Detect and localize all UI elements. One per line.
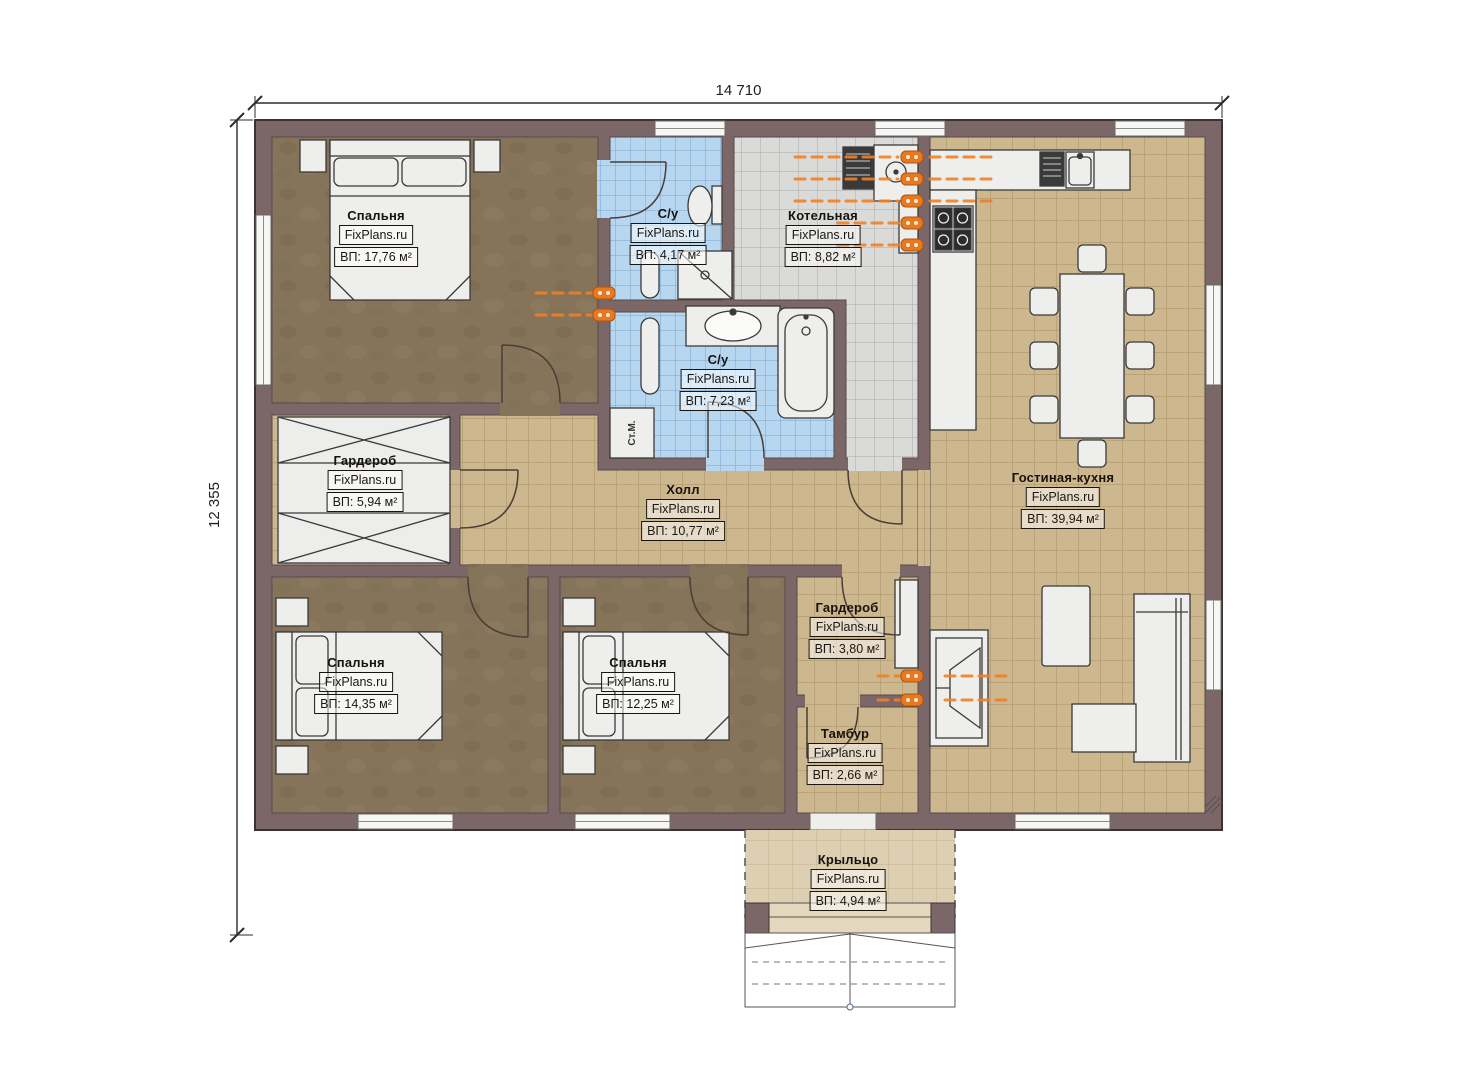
room-name: Холл: [666, 482, 699, 497]
room-area: ВП: 14,35 м²: [314, 694, 398, 714]
dimension-width-label: 14 710: [255, 82, 1222, 99]
room-label-vestibule: Тамбур FixPlans.ru ВП: 2,66 м²: [807, 726, 884, 785]
room-label-wardrobe-1: Гардероб FixPlans.ru ВП: 5,94 м²: [327, 453, 404, 512]
room-area: ВП: 7,23 м²: [680, 391, 757, 411]
room-name: Гардероб: [333, 453, 396, 468]
room-label-boiler-room: Котельная FixPlans.ru ВП: 8,82 м²: [785, 208, 862, 267]
cabinet: [895, 580, 918, 668]
room-label-porch: Крыльцо FixPlans.ru ВП: 4,94 м²: [810, 852, 887, 911]
room-brand: FixPlans.ru: [786, 225, 861, 245]
bathtub: [778, 308, 834, 418]
room-brand: FixPlans.ru: [646, 499, 721, 519]
room-area: ВП: 2,66 м²: [807, 765, 884, 785]
coffee-table: [1042, 586, 1090, 666]
room-brand: FixPlans.ru: [681, 369, 756, 389]
entrance-door: [810, 813, 876, 830]
room-label-hall: Холл FixPlans.ru ВП: 10,77 м²: [641, 482, 725, 541]
room-area: ВП: 12,25 м²: [596, 694, 680, 714]
room-label-bedroom-3: Спальня FixPlans.ru ВП: 12,25 м²: [596, 655, 680, 714]
towel-radiator: [641, 318, 659, 394]
room-name: Спальня: [327, 655, 385, 670]
washing-machine-label: Ст.М.: [619, 405, 645, 461]
room-label-bedroom-2: Спальня FixPlans.ru ВП: 14,35 м²: [314, 655, 398, 714]
room-area: ВП: 17,76 м²: [334, 247, 418, 267]
room-area: ВП: 4,17 м²: [630, 245, 707, 265]
room-name: Гардероб: [815, 600, 878, 615]
room-area: ВП: 39,94 м²: [1021, 509, 1105, 529]
room-name: Спальня: [347, 208, 405, 223]
room-name: Тамбур: [821, 726, 869, 741]
room-brand: FixPlans.ru: [319, 672, 394, 692]
room-label-wardrobe-2: Гардероб FixPlans.ru ВП: 3,80 м²: [809, 600, 886, 659]
room-name: Гостиная-кухня: [1012, 470, 1114, 485]
room-brand: FixPlans.ru: [601, 672, 676, 692]
room-area: ВП: 10,77 м²: [641, 521, 725, 541]
room-area: ВП: 5,94 м²: [327, 492, 404, 512]
room-brand: FixPlans.ru: [339, 225, 414, 245]
fireplace: [930, 630, 988, 746]
room-area: ВП: 4,94 м²: [810, 891, 887, 911]
room-brand: FixPlans.ru: [808, 743, 883, 763]
floorplan-page: 14 710 12 355 Спальня FixPlans.ru ВП: 17…: [0, 0, 1473, 1080]
room-brand: FixPlans.ru: [810, 617, 885, 637]
room-label-bathroom-2: С/у FixPlans.ru ВП: 7,23 м²: [680, 352, 757, 411]
room-brand: FixPlans.ru: [631, 223, 706, 243]
room-brand: FixPlans.ru: [1026, 487, 1101, 507]
room-label-bedroom-1: Спальня FixPlans.ru ВП: 17,76 м²: [334, 208, 418, 267]
room-label-bathroom-1: С/у FixPlans.ru ВП: 4,17 м²: [630, 206, 707, 265]
room-name: Спальня: [609, 655, 667, 670]
washbasin: [686, 306, 780, 346]
room-label-living-kitchen: Гостиная-кухня FixPlans.ru ВП: 39,94 м²: [1012, 470, 1114, 529]
room-name: Крыльцо: [818, 852, 879, 867]
room-name: С/у: [658, 206, 679, 221]
room-area: ВП: 3,80 м²: [809, 639, 886, 659]
room-name: Котельная: [788, 208, 858, 223]
room-area: ВП: 8,82 м²: [785, 247, 862, 267]
stove: [933, 206, 973, 252]
room-brand: FixPlans.ru: [328, 470, 403, 490]
dimension-height-label: 12 355: [206, 455, 226, 555]
room-name: С/у: [708, 352, 729, 367]
room-brand: FixPlans.ru: [811, 869, 886, 889]
